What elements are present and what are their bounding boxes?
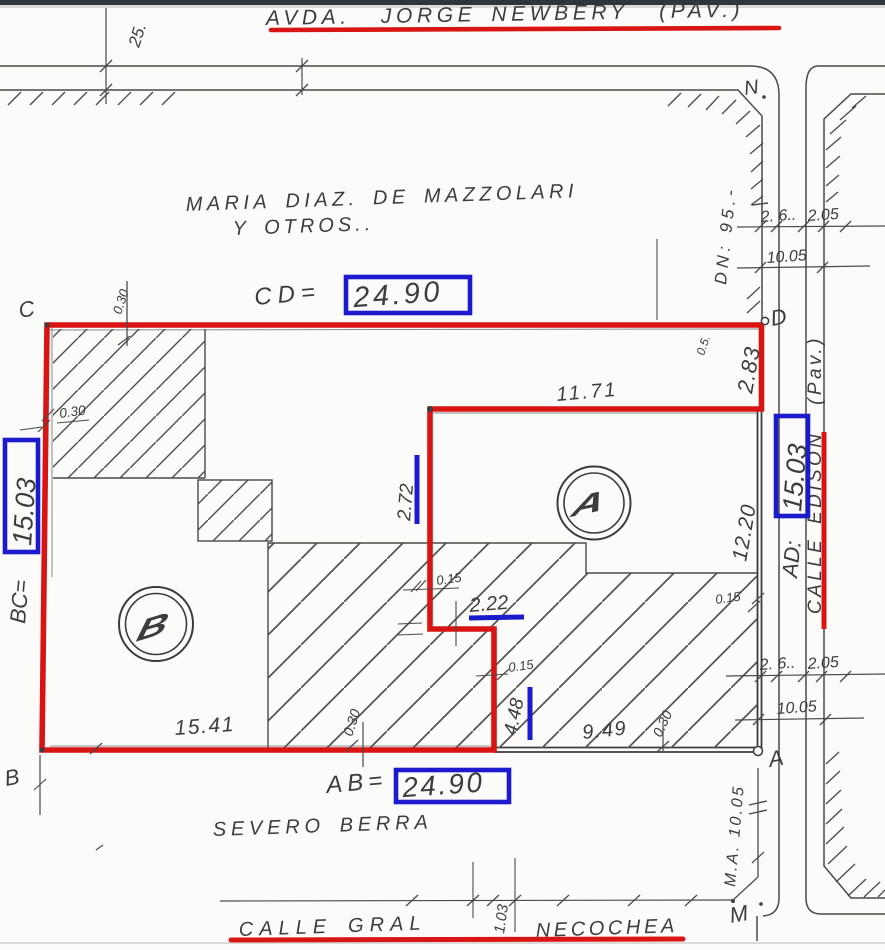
svg-text:10.05: 10.05: [766, 247, 807, 267]
svg-text:BC=: BC=: [5, 579, 34, 625]
svg-text:9.49: 9.49: [581, 717, 628, 744]
svg-text:24.90: 24.90: [400, 766, 485, 803]
svg-text:2.05: 2.05: [806, 654, 839, 673]
svg-text:2. 6..: 2. 6..: [759, 207, 797, 227]
svg-text:15.41: 15.41: [174, 713, 236, 740]
svg-text:AB=: AB=: [323, 767, 388, 799]
svg-text:2.22: 2.22: [468, 592, 510, 617]
svg-text:24.90: 24.90: [351, 276, 444, 314]
svg-text:2.05: 2.05: [806, 206, 839, 225]
svg-text:15.03: 15.03: [7, 477, 42, 547]
svg-text:15.03: 15.03: [777, 443, 813, 513]
svg-text:AD:: AD:: [777, 539, 806, 580]
svg-text:10.05: 10.05: [776, 698, 817, 718]
svg-text:2. 6..: 2. 6..: [758, 655, 796, 675]
